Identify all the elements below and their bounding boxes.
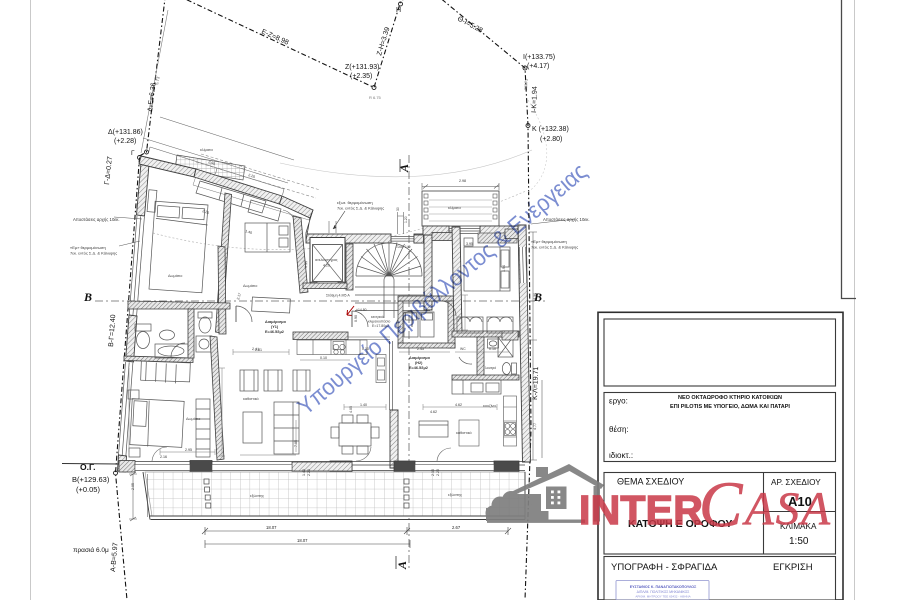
svg-text:18.07: 18.07 xyxy=(266,525,277,530)
svg-text:ΝΕΟ ΟΚΤΑΩΡΟΦΟ ΚΤΗΡΙΟ ΚΑΤΟΙΚΙΩΝ: ΝΕΟ ΟΚΤΑΩΡΟΦΟ ΚΤΗΡΙΟ ΚΑΤΟΙΚΙΩΝ xyxy=(678,395,782,401)
svg-text:κουζίνα: κουζίνα xyxy=(483,404,496,408)
svg-text:εργο:: εργο: xyxy=(609,397,628,406)
svg-text:καθιστικό: καθιστικό xyxy=(243,397,259,401)
svg-text:(+0.05): (+0.05) xyxy=(76,485,100,494)
svg-text:4.77: 4.77 xyxy=(533,423,537,430)
svg-text:7εκ. εντός Σ.Δ. & Κάλυψης: 7εκ. εντός Σ.Δ. & Κάλυψης xyxy=(531,245,578,250)
svg-text:Διαμέρισμα: Διαμέρισμα xyxy=(265,320,286,324)
svg-text:εξώστης: εξώστης xyxy=(448,493,462,497)
svg-text:+14.80: +14.80 xyxy=(356,308,367,312)
svg-text:«Εμ» θερμομόνωση: «Εμ» θερμομόνωση xyxy=(531,239,567,244)
svg-text:Z(+131.93): Z(+131.93) xyxy=(345,64,379,71)
svg-text:ΕΥΣΤΑΘΙΟΣ Κ. ΠΑΝΑΓΙΩΤΑΚΟΠΟΥΛΟΣ: ΕΥΣΤΑΘΙΟΣ Κ. ΠΑΝΑΓΙΩΤΑΚΟΠΟΥΛΟΣ xyxy=(630,585,697,589)
svg-text:18.07: 18.07 xyxy=(297,538,308,543)
svg-text:0.10: 0.10 xyxy=(489,347,496,351)
svg-text:4.62: 4.62 xyxy=(455,403,462,407)
svg-text:Αποστάσεις αρχής 10εκ.: Αποστάσεις αρχής 10εκ. xyxy=(73,217,120,222)
svg-text:1:50: 1:50 xyxy=(789,536,809,547)
svg-text:INTER: INTER xyxy=(579,487,703,533)
svg-text:1.20: 1.20 xyxy=(404,216,408,223)
svg-text:B(+129.63): B(+129.63) xyxy=(72,475,110,484)
svg-text:2.20: 2.20 xyxy=(307,469,311,476)
svg-text:(+2.28): (+2.28) xyxy=(114,138,136,145)
svg-text:Δωμάτιο: Δωμάτιο xyxy=(243,284,257,288)
svg-text:(+2.80): (+2.80) xyxy=(540,136,562,143)
svg-text:εξώστης: εξώστης xyxy=(250,494,264,498)
svg-text:θέση:: θέση: xyxy=(609,425,629,434)
svg-text:7εκ. εντός Σ.Δ. & Κάλυψης: 7εκ. εντός Σ.Δ. & Κάλυψης xyxy=(70,251,117,256)
svg-text:B: B xyxy=(83,290,92,304)
svg-text:0.10: 0.10 xyxy=(320,356,327,360)
svg-text:(+4.17): (+4.17) xyxy=(527,63,549,70)
svg-text:(Υ1): (Υ1) xyxy=(271,325,279,329)
svg-text:ανελκυστήρας: ανελκυστήρας xyxy=(315,258,338,262)
svg-text:εξωτ. θερμομόνωση: εξωτ. θερμομόνωση xyxy=(337,200,373,205)
svg-text:C: C xyxy=(699,469,743,541)
svg-text:2.20: 2.20 xyxy=(436,469,440,476)
svg-text:(Η2): (Η2) xyxy=(415,361,423,365)
svg-text:2.16: 2.16 xyxy=(160,455,167,459)
svg-text:ιδιοκτ.:: ιδιοκτ.: xyxy=(609,451,633,460)
svg-text:4.30: 4.30 xyxy=(533,293,537,300)
svg-text:ΔΙΠΛ/Μ. ΠΟΛΙΤΙΚΟΣ ΜΗΧΑΝΙΚΟΣ: ΔΙΠΛ/Μ. ΠΟΛΙΤΙΚΟΣ ΜΗΧΑΝΙΚΟΣ xyxy=(637,590,690,594)
svg-text:Ε=46.5δμ2: Ε=46.5δμ2 xyxy=(409,366,428,370)
svg-text:«Εμ» θερμομόνωση: «Εμ» θερμομόνωση xyxy=(70,245,106,250)
svg-text:κλίματα: κλίματα xyxy=(200,148,213,152)
svg-text:καθιστικό: καθιστικό xyxy=(456,431,472,435)
svg-text:Διαμέρισμα: Διαμέρισμα xyxy=(409,356,430,360)
svg-text:2.45: 2.45 xyxy=(417,347,424,351)
svg-text:λουτρό: λουτρό xyxy=(485,366,496,370)
svg-text:I-K=1.94: I-K=1.94 xyxy=(531,86,539,113)
svg-text:4.62: 4.62 xyxy=(430,410,437,414)
svg-text:1.35: 1.35 xyxy=(304,261,308,268)
svg-text:κλίματα: κλίματα xyxy=(448,206,461,210)
svg-text:1.40: 1.40 xyxy=(302,469,306,476)
svg-text:2.98: 2.98 xyxy=(459,179,466,183)
svg-text:ΑΡΙΘΜ. ΜΗΤΡΩΟΥ ΤΕΕ 65432 - ΑΘΗ: ΑΡΙΘΜ. ΜΗΤΡΩΟΥ ΤΕΕ 65432 - ΑΘΗΝΑ xyxy=(635,595,690,599)
svg-text:4.26: 4.26 xyxy=(323,264,330,268)
svg-text:7εκ. εντός Σ.Δ. & Κάλυψης: 7εκ. εντός Σ.Δ. & Κάλυψης xyxy=(337,206,384,211)
svg-text:R 6.75: R 6.75 xyxy=(369,95,382,100)
svg-text:Ε=46.5δμ2: Ε=46.5δμ2 xyxy=(265,330,284,334)
svg-text:κεντρικό: κεντρικό xyxy=(371,315,384,319)
svg-text:A: A xyxy=(395,561,409,570)
svg-text:I(+133.75): I(+133.75) xyxy=(523,54,555,61)
svg-text:Δωμάτιο: Δωμάτιο xyxy=(186,417,200,421)
svg-text:K (+132.38): K (+132.38) xyxy=(532,126,569,133)
svg-text:ASA: ASA xyxy=(742,483,832,535)
svg-text:Γ: Γ xyxy=(131,150,135,157)
svg-text:1.40: 1.40 xyxy=(360,403,367,407)
svg-text:ΥΠΟΓΡΑΦΗ - ΣΦΡΑΓΙΔΑ: ΥΠΟΓΡΑΦΗ - ΣΦΡΑΓΙΔΑ xyxy=(611,562,718,573)
svg-text:1.94: 1.94 xyxy=(502,265,506,272)
svg-text:H: H xyxy=(396,7,401,14)
svg-text:Πλάτ. 149: Πλάτ. 149 xyxy=(396,245,411,249)
svg-text:2.95: 2.95 xyxy=(185,448,192,452)
svg-text:ΕΠΙ PILOTIS ΜΕ ΥΠΟΓΕΙΟ, ΔΩΜΑ Κ: ΕΠΙ PILOTIS ΜΕ ΥΠΟΓΕΙΟ, ΔΩΜΑ ΚΑΙ ΠΑΤΑΡΙ xyxy=(670,404,790,410)
svg-text:πρασιά 6.0μ: πρασιά 6.0μ xyxy=(73,546,109,554)
svg-text:ΕΓΚΡΙΣΗ: ΕΓΚΡΙΣΗ xyxy=(773,562,813,573)
svg-text:Αποστάσεις αρχής 10εκ.: Αποστάσεις αρχής 10εκ. xyxy=(543,217,590,222)
svg-text:Στάθμη 4.M5 A: Στάθμη 4.M5 A xyxy=(326,294,350,298)
svg-text:303.71: 303.71 xyxy=(524,79,528,90)
svg-text:WC: WC xyxy=(460,347,466,351)
svg-text:2.81: 2.81 xyxy=(255,348,262,352)
svg-text:0.90: 0.90 xyxy=(354,315,358,322)
svg-text:Δ(+131.86): Δ(+131.86) xyxy=(108,129,143,136)
svg-text:Δωμάτιο: Δωμάτιο xyxy=(168,274,182,278)
svg-text:2.35: 2.35 xyxy=(431,469,435,476)
svg-text:30: 30 xyxy=(396,207,400,211)
svg-text:ΘΕΜΑ ΣΧΕΔΙΟΥ: ΘΕΜΑ ΣΧΕΔΙΟΥ xyxy=(617,477,684,487)
svg-text:2.67: 2.67 xyxy=(452,525,461,530)
svg-text:(+2.35): (+2.35) xyxy=(350,73,372,80)
svg-text:A: A xyxy=(397,164,411,173)
